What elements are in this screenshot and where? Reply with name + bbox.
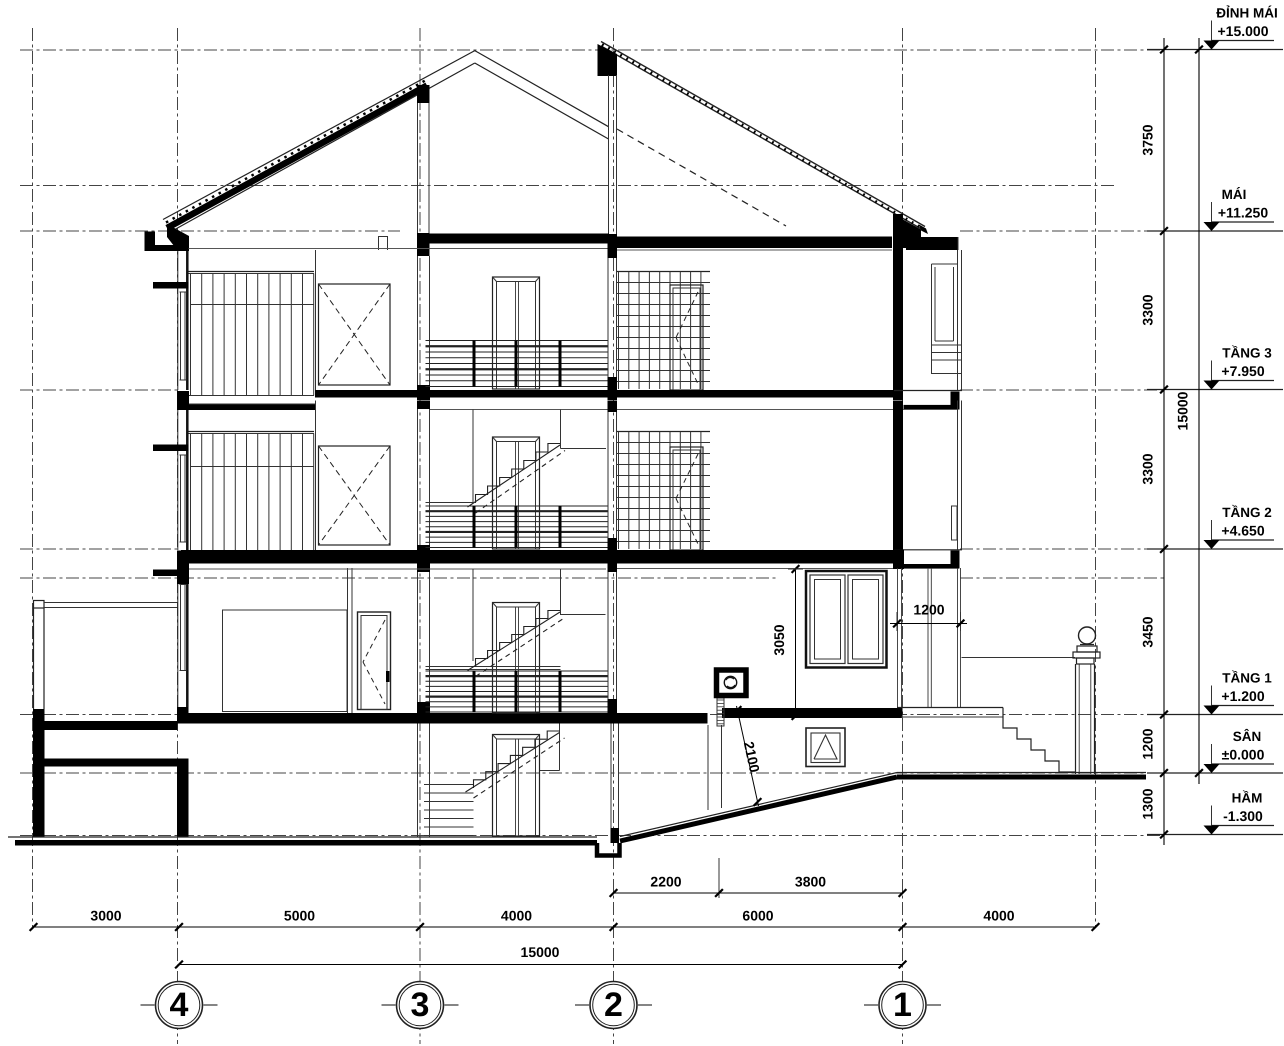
svg-text:MÁI: MÁI	[1222, 187, 1247, 202]
svg-text:-1.300: -1.300	[1223, 808, 1263, 824]
svg-text:HẦM: HẦM	[1232, 790, 1263, 806]
svg-text:4000: 4000	[501, 908, 532, 924]
svg-text:2200: 2200	[650, 874, 681, 890]
svg-text:3000: 3000	[90, 908, 121, 924]
svg-text:4000: 4000	[983, 908, 1014, 924]
svg-text:1200: 1200	[1140, 728, 1156, 759]
svg-text:3300: 3300	[1140, 294, 1156, 325]
svg-text:ĐỈNH MÁI: ĐỈNH MÁI	[1216, 5, 1278, 21]
svg-text:6000: 6000	[742, 908, 773, 924]
svg-text:1: 1	[893, 986, 912, 1024]
svg-text:3300: 3300	[1140, 453, 1156, 484]
svg-text:3750: 3750	[1140, 124, 1156, 155]
svg-text:+7.950: +7.950	[1221, 363, 1264, 379]
svg-text:+15.000: +15.000	[1218, 23, 1269, 39]
svg-text:TẦNG 3: TẦNG 3	[1222, 345, 1272, 361]
svg-text:1200: 1200	[913, 602, 944, 618]
svg-text:2: 2	[604, 986, 623, 1024]
svg-text:3: 3	[411, 986, 430, 1024]
svg-text:3050: 3050	[771, 624, 787, 655]
svg-text:5000: 5000	[284, 908, 315, 924]
svg-text:15000: 15000	[1175, 391, 1191, 430]
svg-text:15000: 15000	[521, 944, 560, 960]
svg-text:SÂN: SÂN	[1233, 728, 1262, 744]
svg-text:+4.650: +4.650	[1221, 523, 1264, 539]
svg-text:3800: 3800	[795, 874, 826, 890]
svg-text:1300: 1300	[1140, 788, 1156, 819]
svg-text:3450: 3450	[1140, 616, 1156, 647]
svg-text:4: 4	[170, 986, 189, 1024]
svg-text:+11.250: +11.250	[1218, 205, 1268, 221]
svg-text:+1.200: +1.200	[1221, 688, 1264, 704]
svg-text:TẦNG 2: TẦNG 2	[1222, 504, 1272, 520]
svg-text:±0.000: ±0.000	[1222, 747, 1265, 763]
svg-text:TẦNG 1: TẦNG 1	[1222, 670, 1272, 686]
